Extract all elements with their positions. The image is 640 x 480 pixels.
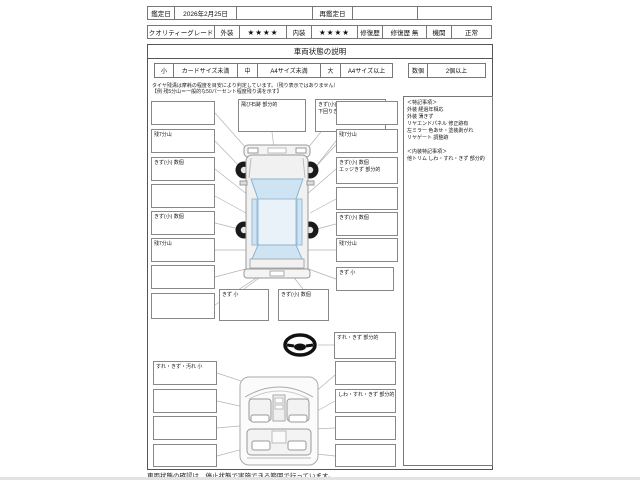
damage-label-box: きず 小 xyxy=(219,289,269,321)
exterior-grade-stars: ★★★★ xyxy=(240,25,287,39)
reappraisal-blank-cell xyxy=(418,6,492,20)
remarks-line: 外装 経過年相応 xyxy=(407,107,489,114)
interior-grade-stars: ★★★★ xyxy=(312,25,358,39)
damage-label-box: 飛び石跡 部分的 xyxy=(238,99,306,132)
damage-label: きず 小 xyxy=(222,292,238,298)
legend-medium-key: 中 xyxy=(238,63,258,78)
damage-label-box: きず(小) 数個 xyxy=(278,289,329,321)
interior-label-box xyxy=(153,444,217,467)
damage-label-box: きず(小) 数個 xyxy=(151,157,215,181)
legend-large-value: A4サイズ以上 xyxy=(341,63,393,78)
quality-grade-label: クオリティーグレード xyxy=(147,25,215,39)
condition-panel: 車両状態の説明 小 カードサイズ未満 中 A4サイズ未満 大 A4サイズ以上 数… xyxy=(147,44,493,470)
remarks-line: 左ミラー 色あせ・塗装剥がれ xyxy=(407,128,489,135)
remarks-panel: ＜特記事項＞ 外装 経過年相応 外装 薄きず リヤエンドパネル 修正跡有 左ミラ… xyxy=(403,96,493,466)
damage-label: エッジきず 部分的 xyxy=(339,167,395,174)
interior-label-box xyxy=(335,361,396,385)
engine-label: 機関 xyxy=(427,25,452,39)
legend-count-key: 数個 xyxy=(408,63,428,78)
damage-label-box: きず(小) 数個 xyxy=(336,212,398,236)
interior-label-box: しわ・すれ・きず 部分的 xyxy=(335,389,396,413)
interior-label-box: すれ・きず・汚れ 小 xyxy=(153,361,217,385)
damage-label: きず(小) 数個 xyxy=(339,215,369,221)
interior-label: すれ・きず 部分的 xyxy=(337,335,378,341)
damage-label: 飛び石跡 部分的 xyxy=(241,102,303,109)
repair-history-label: 修復歴 xyxy=(358,25,383,39)
size-legend: 小 カードサイズ未満 中 A4サイズ未満 大 A4サイズ以上 xyxy=(154,63,393,78)
car-top-view-diagram xyxy=(234,143,320,279)
remarks-title-exterior: ＜特記事項＞ xyxy=(407,100,489,107)
appraisal-date-label: 鑑定日 xyxy=(147,6,175,20)
damage-label-box xyxy=(151,293,215,319)
tread-label: 残7分山 xyxy=(339,241,357,247)
appraisal-date-value: 2026年2月25日 xyxy=(175,6,237,20)
windshield xyxy=(251,179,303,199)
damage-label-box: きず(小) 数個 xyxy=(151,211,215,235)
tread-label-box: 残7分山 xyxy=(151,129,215,153)
damage-label-box xyxy=(151,265,215,289)
appraisal-date-row: 鑑定日 2026年2月25日 再鑑定日 xyxy=(147,6,492,20)
cabin-interior-diagram xyxy=(239,371,319,466)
quality-grade-row: クオリティーグレード 外装 ★★★★ 内装 ★★★★ 修復歴 修復歴 無 機関 … xyxy=(147,25,492,39)
panel-title: 車両状態の説明 xyxy=(148,45,492,59)
exterior-grade-label: 外装 xyxy=(215,25,240,39)
interior-label-box xyxy=(335,444,396,467)
interior-label: しわ・すれ・きず 部分的 xyxy=(338,392,394,398)
tread-label: 残7分山 xyxy=(339,132,357,138)
interior-label-box xyxy=(153,389,217,413)
damage-label: きず(小) 数個 xyxy=(154,160,184,166)
repair-history-value: 修復歴 無 xyxy=(383,25,427,39)
tire-note-line2: 【例 残5分山＝一般的な50パーセント程度残り溝を示す】 xyxy=(152,89,282,95)
vehicle-condition-sheet: 鑑定日 2026年2月25日 再鑑定日 クオリティーグレード 外装 ★★★★ 内… xyxy=(0,0,640,480)
damage-label: きず 小 xyxy=(339,270,355,276)
tread-label-box: 残7分山 xyxy=(336,129,398,153)
reappraisal-date-value xyxy=(353,6,418,20)
roof xyxy=(258,199,296,245)
legend-small-value: カードサイズ未満 xyxy=(174,63,238,78)
steering-wheel-icon xyxy=(282,333,318,358)
legend-large-key: 大 xyxy=(321,63,341,78)
remarks-title-interior: ＜内装特記事項＞ xyxy=(407,149,489,156)
remarks-line: リヤゲート 調整跡 xyxy=(407,135,489,142)
count-legend: 数個 2個以上 xyxy=(408,63,486,78)
remarks-line: リヤエンドパネル 修正跡有 xyxy=(407,121,489,128)
remarks-line: 外装 薄きず xyxy=(407,114,489,121)
tread-label: 残7分山 xyxy=(154,241,172,247)
interior-grade-label: 内装 xyxy=(287,25,312,39)
reappraisal-date-label: 再鑑定日 xyxy=(313,6,353,20)
interior-label-box: すれ・きず 部分的 xyxy=(334,332,396,359)
interior-label-box xyxy=(153,416,217,440)
damage-label: きず(小) 数個 xyxy=(154,214,184,220)
tread-label-box: 残7分山 xyxy=(151,238,215,262)
damage-label-box xyxy=(336,101,398,125)
damage-label-box xyxy=(151,101,215,125)
damage-label: きず(小) 数個 xyxy=(281,292,311,298)
damage-label-box xyxy=(336,187,398,210)
remarks-line: 他トリム しわ・すれ・きず 部分的 xyxy=(407,156,489,163)
interior-label: すれ・きず・汚れ 小 xyxy=(156,364,202,370)
tread-label-box: 残7分山 xyxy=(336,238,398,262)
engine-value: 正常 xyxy=(452,25,492,39)
damage-label-box xyxy=(151,184,215,208)
rear-window xyxy=(252,245,302,259)
tread-label: 残7分山 xyxy=(154,132,172,138)
interior-label-box xyxy=(335,416,396,440)
legend-count-value: 2個以上 xyxy=(428,63,486,78)
damage-label-box: きず 小 xyxy=(336,267,394,291)
legend-small-key: 小 xyxy=(154,63,174,78)
damage-label-box: きず(小) 数個 エッジきず 部分的 xyxy=(336,157,398,184)
legend-medium-value: A4サイズ未満 xyxy=(258,63,321,78)
appraisal-blank-cell xyxy=(237,6,313,20)
